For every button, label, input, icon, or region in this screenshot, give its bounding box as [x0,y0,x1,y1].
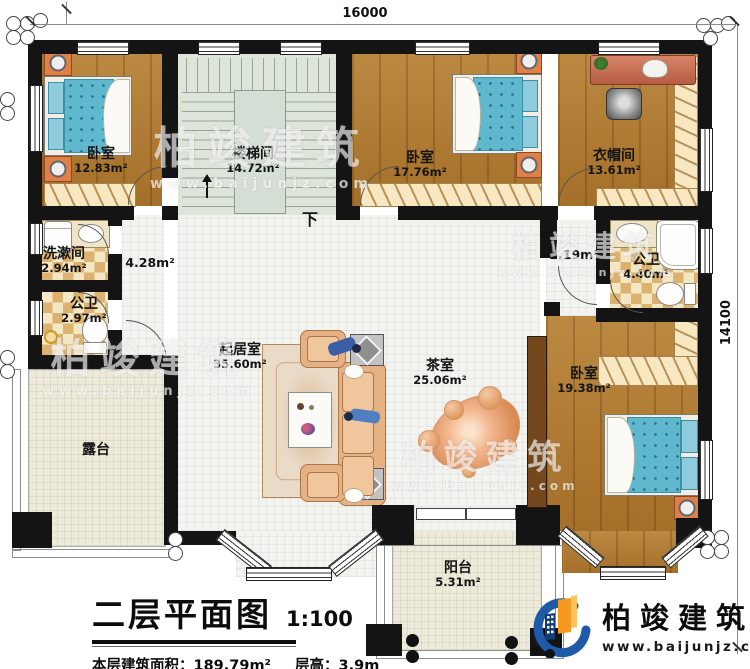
bed-bedroom3 [604,414,702,496]
mattress [627,417,681,493]
corner-column-ornament [700,544,715,559]
brand-name: 柏竣建筑 [602,595,750,637]
window [415,41,470,55]
corner-column-ornament [714,530,729,545]
wall-rooms-bottom [544,206,558,220]
pillow [48,82,64,114]
armchair [300,464,346,502]
corner-column-ornament [0,364,15,379]
corner-column-ornament [33,13,48,28]
bed-sheet [103,79,130,153]
title-block: 二层平面图 1:100 本层建筑面积：189.79m² 层高：3.9m [92,588,422,669]
tea-room-art-dot [478,386,502,410]
stair-treads-right [282,92,336,212]
wall-washroom-right [108,220,122,226]
corner-column-ornament [0,92,15,107]
corner-column-ornament [6,16,21,31]
room-bedroom3-label: 卧室 19.38m² [557,366,610,395]
dimension-line-top [30,24,736,25]
plan-title: 二层平面图 [92,588,272,636]
corner-column-ornament [703,31,718,46]
terrace-railing-bottom [12,549,176,558]
balcony-post-ornament [505,652,518,665]
wall-bedroom1-stair [162,54,178,178]
tea-room-art-dot [418,430,440,452]
corner-column-ornament [6,30,21,45]
bath-right-sink [616,223,648,244]
stair-direction-arrow [206,180,208,198]
stair-direction-arrowhead [202,174,212,182]
window [280,41,322,55]
wall-rooms-bottom [336,206,360,220]
room-balcony-label: 阳台 5.31m² [435,560,480,589]
room-bath-left-label: 公卫 2.97m² [61,296,106,325]
corner-column-ornament [714,544,729,559]
balcony-door [466,508,516,520]
floor-drain [44,330,58,344]
closet-bedroom3-top [598,356,698,386]
hall-right-area-label: 2.19m² [549,248,598,262]
dimension-extension [66,2,67,24]
window [699,128,713,192]
wall-terrace-living [164,355,178,545]
wall-rooms-bottom [162,206,178,220]
toilet-right-tank [684,283,696,305]
tea-room-art-dot [462,464,476,478]
bed-sheet [607,417,635,493]
sofa-pillow [344,364,364,379]
floor-height-info: 层高：3.9m [295,658,379,669]
bed-bedroom2 [452,74,542,154]
room-bath-right-label: 公卫 4.40m² [623,252,668,281]
hall-left-area-label: 4.28m² [125,256,174,270]
wall-wash-bath-divider [28,280,108,292]
window [699,228,713,274]
balcony-door [416,508,466,520]
window [699,440,713,500]
pillow [522,80,538,112]
closet-bedroom3-right [674,318,698,360]
coffee-table [288,392,332,448]
nightstand [674,496,700,520]
toilet-left-tank [83,342,107,354]
window [29,85,43,152]
floor-plan-canvas: 卧室 12.83m² 楼梯间 14.72m² 卧室 17.76m² 衣帽间 13… [0,0,750,669]
corner-column-ornament [0,106,15,121]
room-cloakroom-label: 衣帽间 13.61m² [587,148,640,177]
pillow [48,118,64,150]
person-figure-head [344,412,353,421]
balcony-pillar-right [516,505,560,545]
plant-on-desk [594,57,608,70]
wall-washroom-right [108,254,122,300]
brand-logo-icon [528,592,592,658]
nightstand [516,152,542,178]
terrace-post [12,512,52,548]
tea-room-art-dot [444,400,464,420]
room-stairwell-label: 楼梯间 14.72m² [226,146,279,175]
room-living-label: 起居室 35.60m² [213,342,266,371]
bed-sheet [455,77,481,151]
sofa-pillow [344,488,364,503]
balcony-post-ornament [505,636,518,649]
bed-bedroom1 [44,76,132,156]
corner-column-ornament [20,30,35,45]
dimension-width-label: 16000 [310,6,420,21]
toilet-right [656,282,684,306]
plan-scale: 1:100 [286,607,353,631]
dimension-height-label: 14100 [719,300,734,345]
room-washroom-label: 洗漱间 2.94m² [41,246,86,275]
stair-treads-top [186,58,332,92]
dimension-line-right [737,24,738,654]
hat-on-desk [642,59,668,78]
bay-window [600,566,666,580]
corner-column-ornament [168,532,183,547]
corner-column-ornament [168,546,183,561]
floor-area-info: 本层建筑面积：189.79m² [92,658,271,669]
wall-stair-bedroom2 [336,54,352,206]
wardrobe-bedroom1 [44,183,136,207]
nightstand [44,156,72,182]
window [29,300,43,336]
person-figure-head [352,344,361,353]
title-underline-thin [92,646,296,647]
brand-logo: 柏竣建筑 www.baijunjz.com [528,592,750,658]
chair [606,88,642,120]
wall-rooms-bottom [398,206,544,220]
wall-rooms-bottom [28,206,134,220]
tea-room-art-dot [500,438,517,455]
wall-tea-bedroom3 [527,336,547,508]
corner-column-ornament [0,350,15,365]
pillow [522,116,538,148]
wall-bathright-bottom [596,308,712,322]
room-bedroom1-label: 卧室 12.83m² [74,146,127,175]
wall-rooms-bottom [594,206,712,220]
pillow [681,420,698,453]
room-tea-label: 茶室 25.06m² [413,358,466,387]
wall-hall-bedroom3 [544,302,560,316]
window [598,41,660,55]
wall-washroom-right [108,330,122,355]
title-underline-thick [92,640,296,644]
window [77,41,129,55]
room-bedroom2-label: 卧室 17.76m² [393,150,446,179]
brand-url: www.baijunjz.com [602,639,750,655]
bay-window [246,567,332,581]
room-terrace-label: 露台 [82,442,110,458]
window [198,41,240,55]
pillow [681,457,698,490]
stair-down-label: 下 [302,206,318,230]
